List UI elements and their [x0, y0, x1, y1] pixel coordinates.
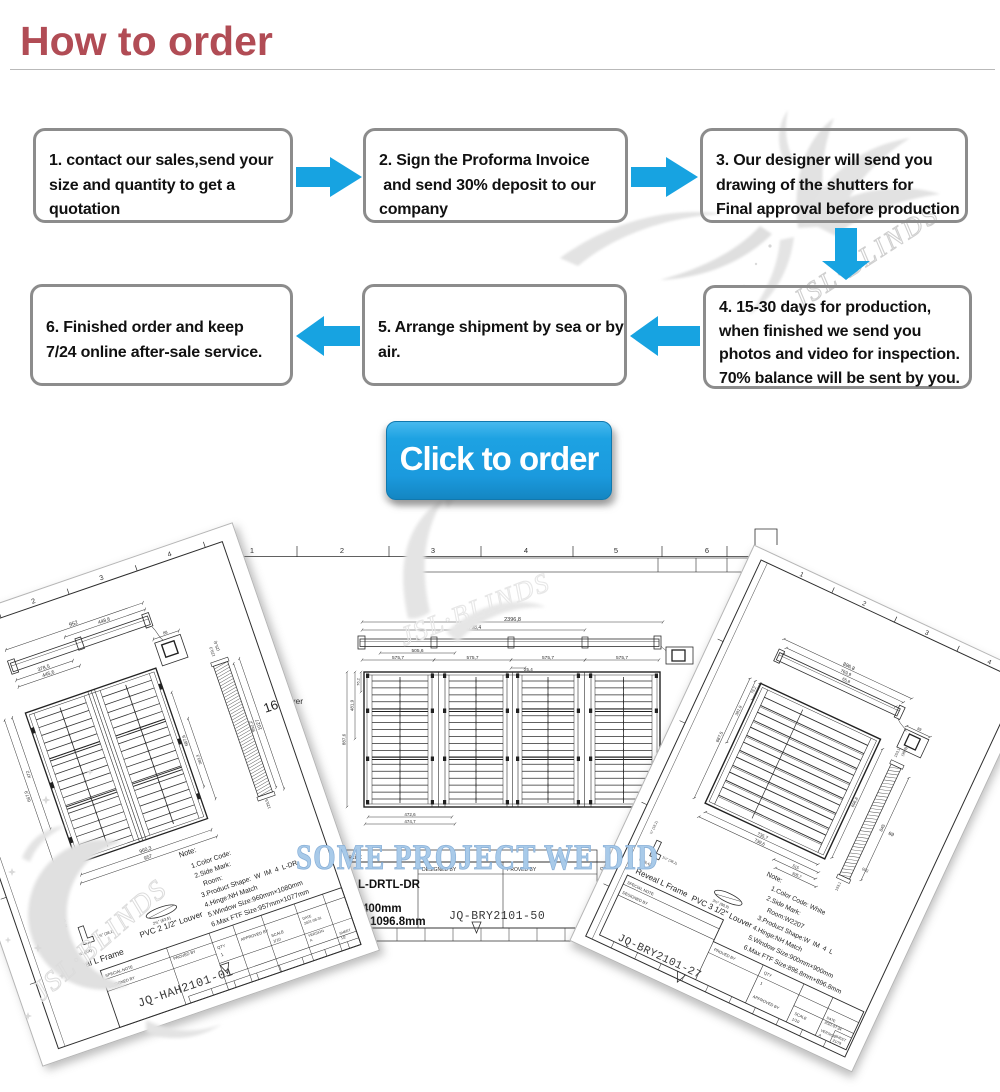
svg-text:SOME PROJECT WE DID: SOME PROJECT WE DID — [296, 838, 659, 878]
